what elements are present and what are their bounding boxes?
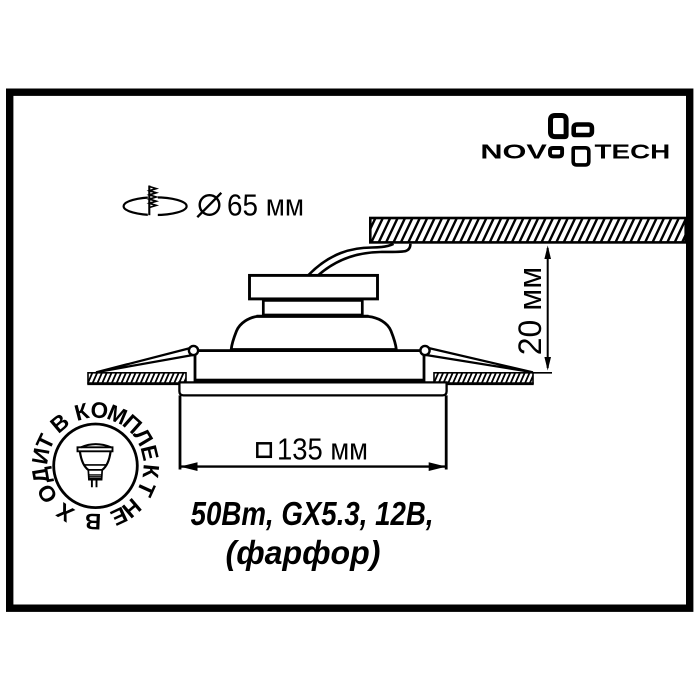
svg-text:50Вm, GX5.3, 12В,: 50Вm, GX5.3, 12В, <box>191 496 434 533</box>
svg-text:(фарфор): (фарфор) <box>226 535 381 572</box>
svg-text:135 мм: 135 мм <box>277 433 368 467</box>
svg-text:65 мм: 65 мм <box>227 188 304 222</box>
svg-text:TECH: TECH <box>595 142 671 164</box>
svg-text:20 мм: 20 мм <box>512 267 548 355</box>
svg-text:В: В <box>84 508 101 534</box>
svg-text:К: К <box>138 463 164 479</box>
svg-text:NOV: NOV <box>480 142 548 164</box>
